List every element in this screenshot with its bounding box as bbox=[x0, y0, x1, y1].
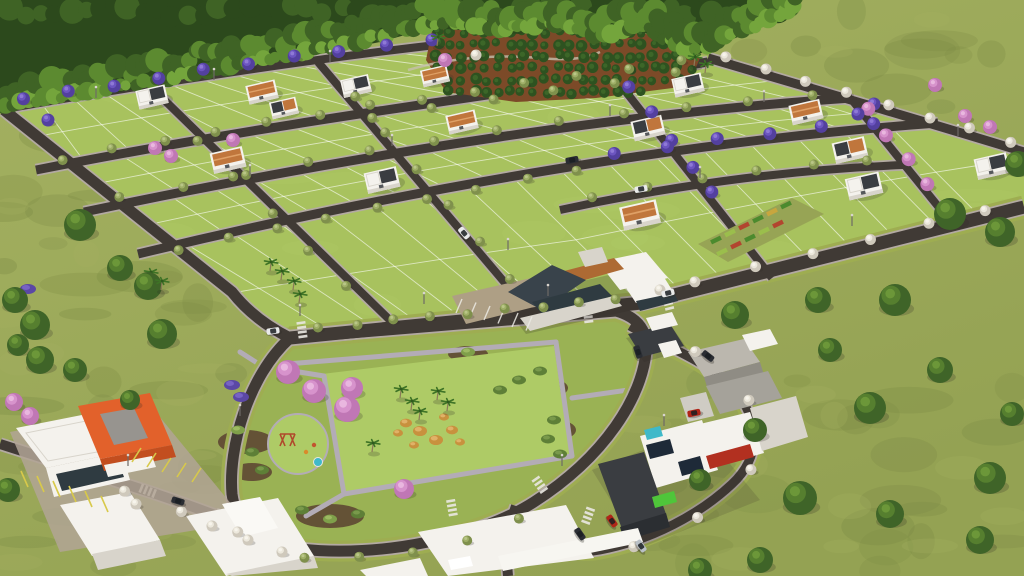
shrub-tree bbox=[553, 450, 567, 459]
playground bbox=[268, 414, 328, 474]
shrub-tree bbox=[245, 448, 259, 457]
shrub-tree bbox=[295, 506, 309, 515]
shrub-tree bbox=[541, 435, 555, 444]
shrub-tree bbox=[461, 348, 475, 357]
shrub-tree bbox=[547, 416, 561, 425]
shrub-tree bbox=[255, 466, 269, 475]
fieldTree-tree bbox=[1000, 402, 1024, 426]
shrub-tree bbox=[323, 515, 337, 524]
masterplan-svg bbox=[0, 0, 1024, 576]
bushPurple-tree bbox=[224, 380, 240, 390]
shrub-tree bbox=[351, 510, 365, 519]
masterplan-aerial-render: Aerial 3D rendering of a suburban reside… bbox=[0, 0, 1024, 576]
bushPurple-tree bbox=[233, 392, 249, 402]
shrub-tree bbox=[512, 376, 526, 385]
shrub-tree bbox=[533, 367, 547, 376]
shrub-tree bbox=[493, 386, 507, 395]
shrub-tree bbox=[231, 426, 245, 435]
